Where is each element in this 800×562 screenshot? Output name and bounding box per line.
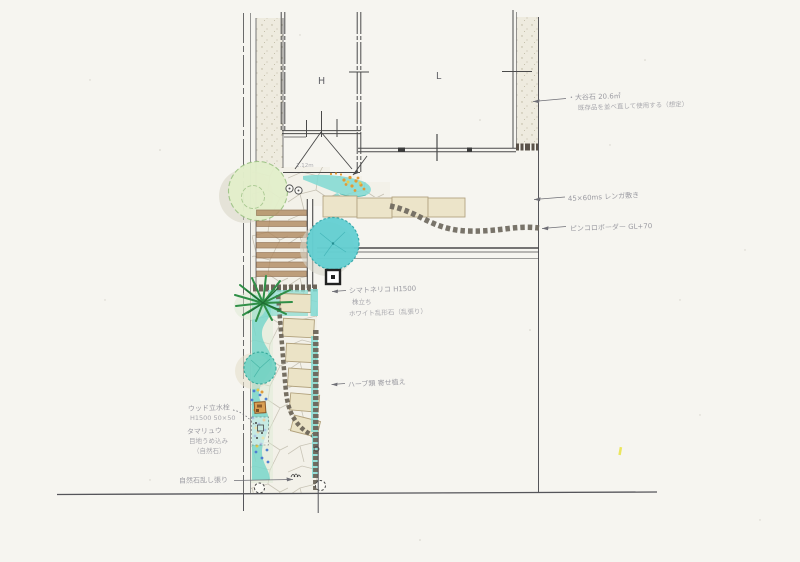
door-sill-mark (398, 148, 405, 153)
annotation-oya-stone-1: ・大谷石 20.6㎡ (568, 91, 621, 102)
annotation-symbol-tree-2: 株立ち (352, 297, 372, 306)
annotation-wood-tap-2: H1500 50×50 (190, 414, 235, 422)
gate-post-symbol (326, 270, 340, 284)
garden-plan-sheet: H L 1.12m (0, 0, 800, 562)
annotation-ground-cover-2: 目地うめ込み (189, 436, 229, 445)
site-plan-svg: H L 1.12m (0, 0, 800, 562)
room-label-l: L (436, 71, 442, 82)
room-label-h: H (318, 76, 326, 87)
annotation-flagstone: 自然石乱し張り (179, 475, 228, 485)
porch-area-note: 1.12m (296, 163, 314, 169)
annotation-ground-cover-1: タマリュウ (187, 426, 222, 436)
paper-background (0, 0, 800, 562)
annotation-ground-cover-3: （自然石） (193, 446, 226, 455)
annotation-wood-tap-1: ウッド立水栓 (188, 403, 230, 413)
window-mark (467, 148, 472, 153)
